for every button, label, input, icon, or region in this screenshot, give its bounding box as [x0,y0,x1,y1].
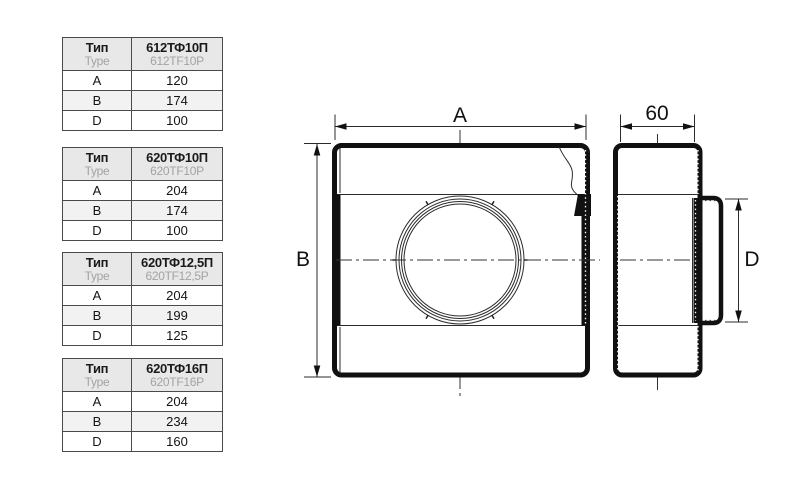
side-spigot-stub [700,198,721,323]
arrow-up [735,199,742,211]
side-view [616,134,722,390]
arrow-up [314,144,321,156]
spec-sheet: Тип Type 612ТФ10П 612TF10P A 120 B 174 D… [0,0,800,500]
arrow-right [575,123,587,130]
arrow-down [314,366,321,378]
dimension-a-label: A [453,104,467,127]
technical-drawing: A B [0,0,800,500]
arrow-left [335,123,347,130]
dimension-b: B [296,144,331,378]
arrow-right [683,123,695,130]
dimension-b-label: B [296,248,310,271]
front-view [335,130,601,398]
arrow-left [621,123,633,130]
dimension-60-label: 60 [645,102,668,125]
dimension-d-label: D [744,248,759,271]
dimension-d: D [725,199,760,322]
arrow-down [735,311,742,323]
